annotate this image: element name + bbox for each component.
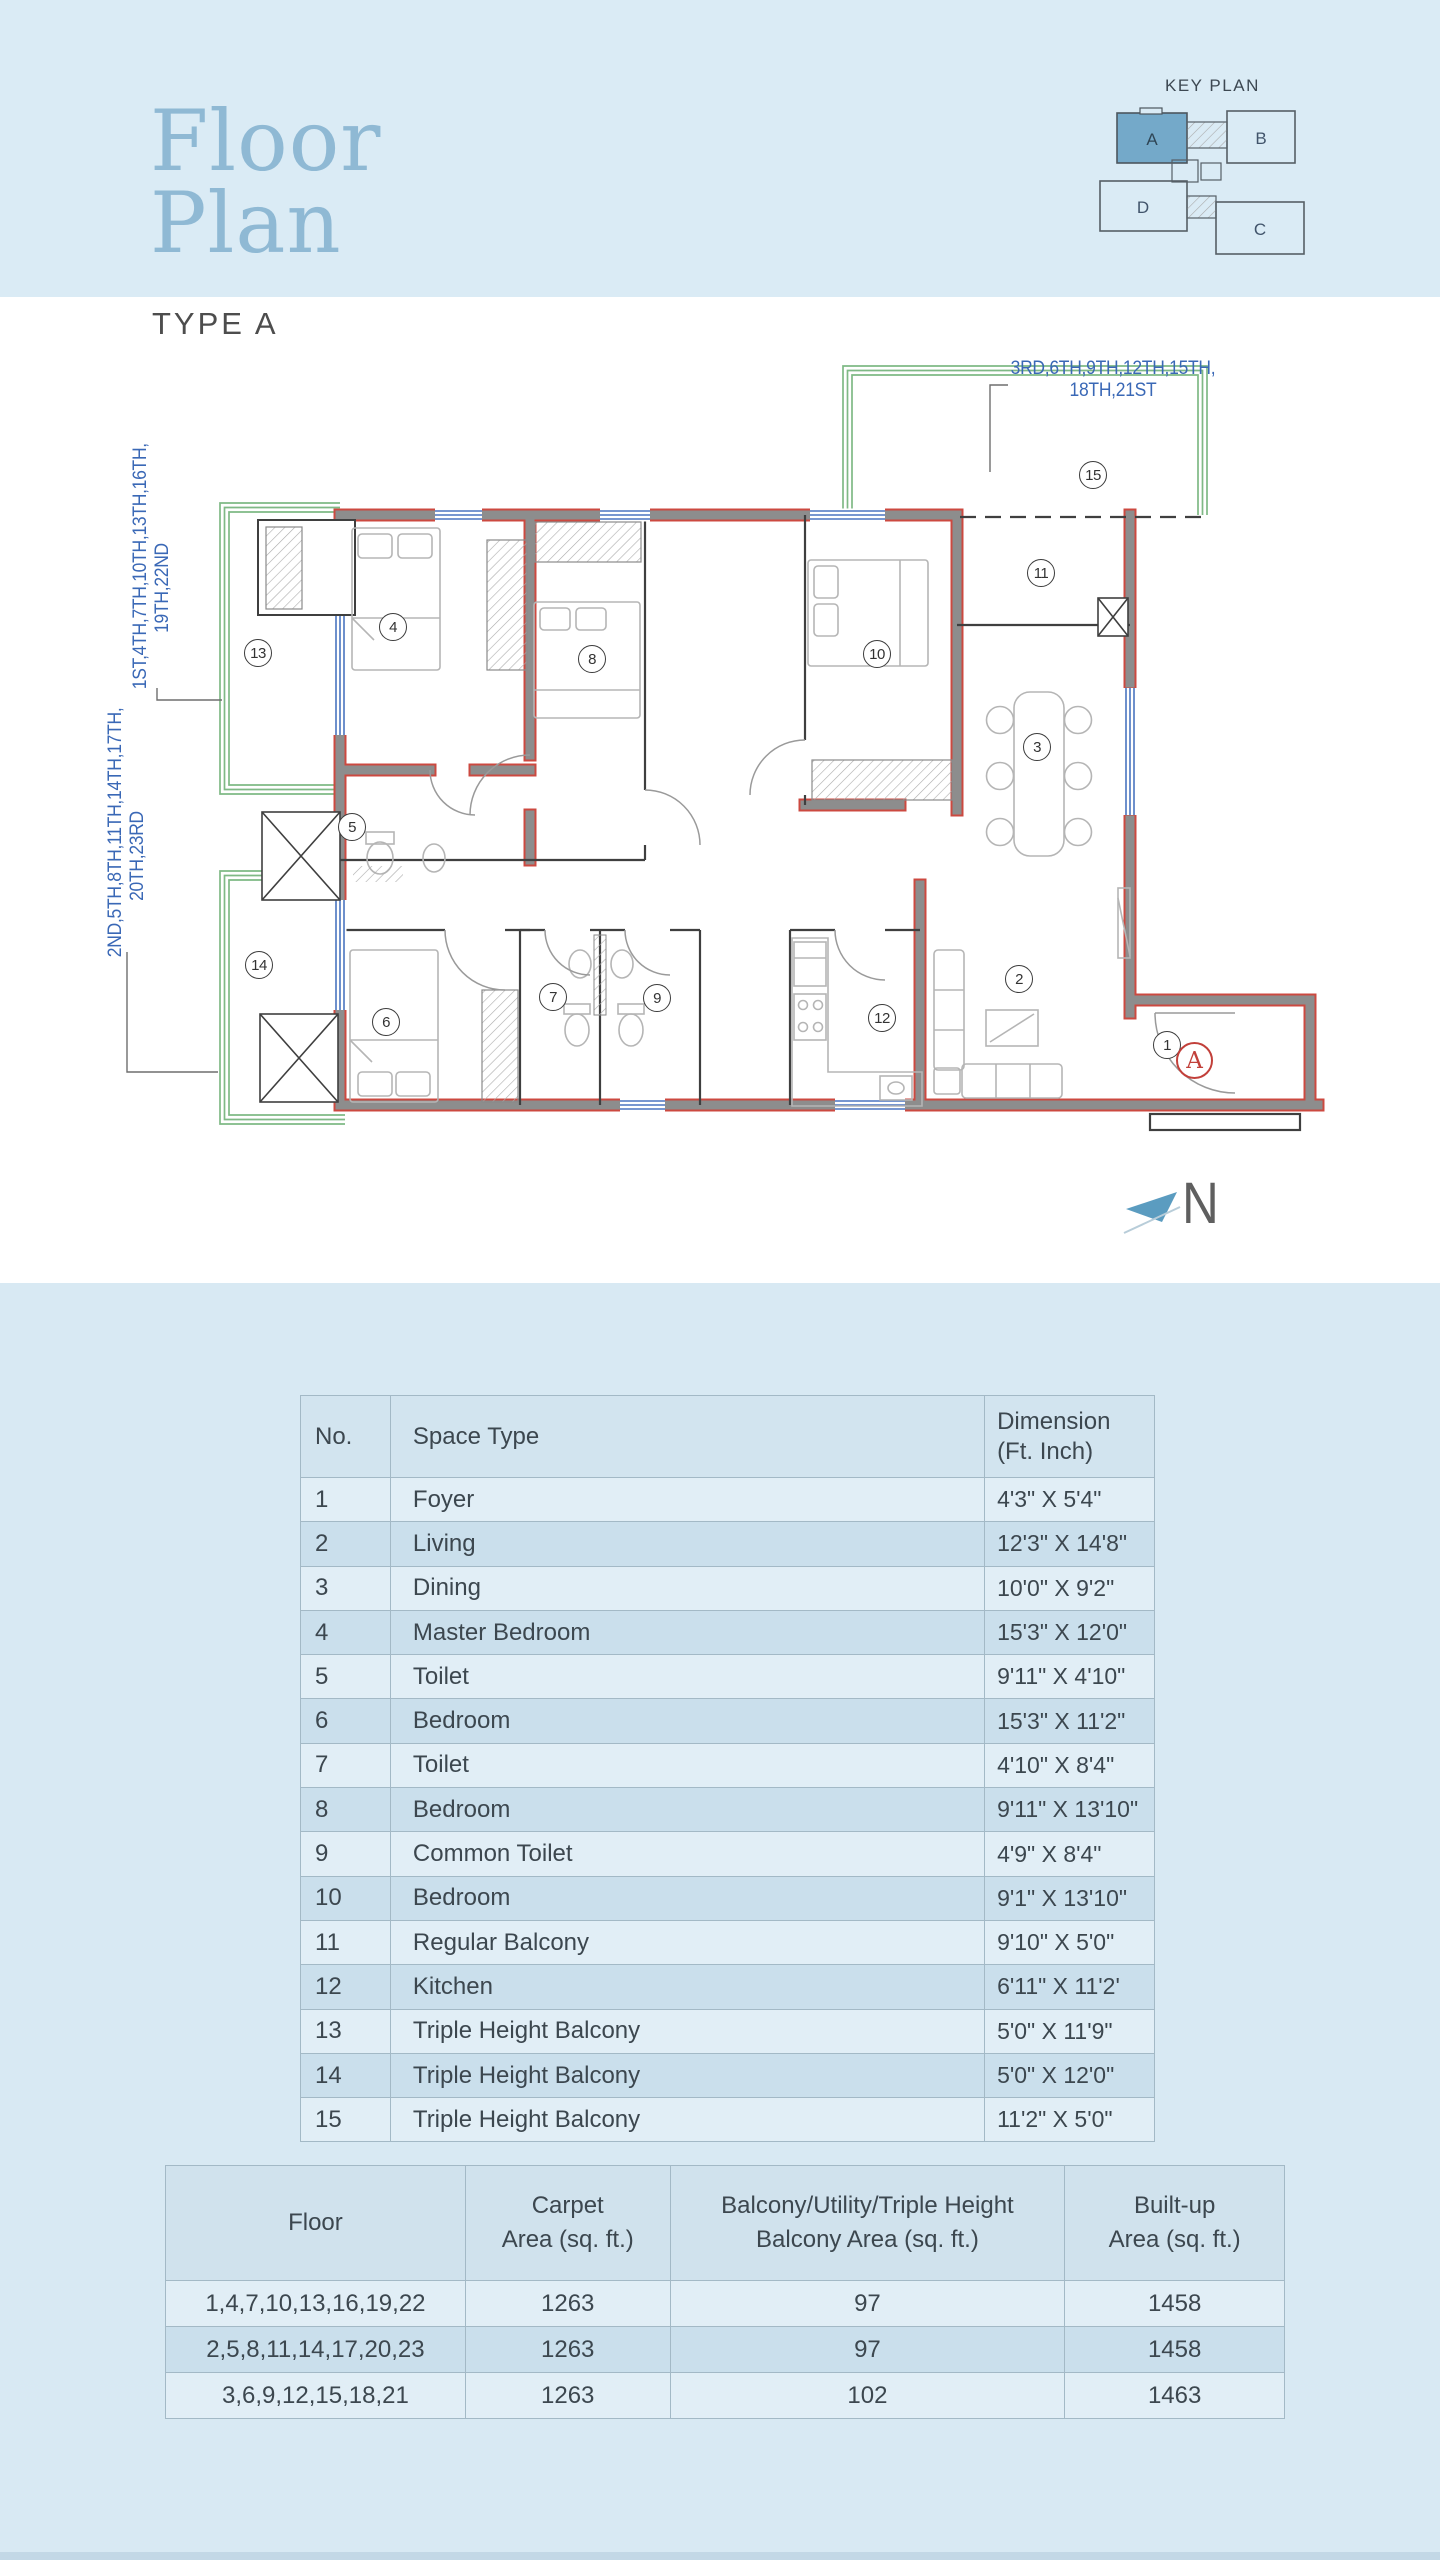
table-cell: 1458: [1065, 2281, 1285, 2327]
table-cell: 10: [301, 1876, 391, 1920]
unit-type-label: TYPE A: [152, 306, 279, 342]
table-cell: Toilet: [390, 1743, 984, 1787]
table-cell: 9'10" X 5'0": [985, 1920, 1155, 1964]
table-row: 8Bedroom9'11" X 13'10": [301, 1788, 1155, 1832]
table-cell: Foyer: [390, 1478, 984, 1522]
table-cell: 5'0" X 11'9": [985, 2009, 1155, 2053]
table-cell: 4'10" X 8'4": [985, 1743, 1155, 1787]
table-row: 1,4,7,10,13,16,19,221263971458: [166, 2281, 1285, 2327]
table-row: 11Regular Balcony9'10" X 5'0": [301, 1920, 1155, 1964]
room-marker-6: 6: [372, 1008, 400, 1036]
table-cell: 13: [301, 2009, 391, 2053]
table-cell: Toilet: [390, 1655, 984, 1699]
floor-range-label-left-lower: 2ND,5TH,8TH,11TH,14TH,17TH,20TH,23RD: [105, 755, 149, 957]
table-cell: 1263: [465, 2281, 670, 2327]
north-label: N: [1182, 1170, 1219, 1237]
table-cell: Regular Balcony: [390, 1920, 984, 1964]
table-cell: 6'11" X 11'2': [985, 1965, 1155, 2009]
floor-area-table: Floor CarpetArea (sq. ft.) Balcony/Utili…: [165, 2165, 1285, 2419]
room-marker-3: 3: [1023, 733, 1051, 761]
table-cell: 9'1" X 13'10": [985, 1876, 1155, 1920]
table-cell: 1263: [465, 2327, 670, 2373]
table-row: 7Toilet4'10" X 8'4": [301, 1743, 1155, 1787]
table-row: 9Common Toilet4'9" X 8'4": [301, 1832, 1155, 1876]
table-row: 14Triple Height Balcony5'0" X 12'0": [301, 2053, 1155, 2097]
room-marker-9: 9: [643, 984, 671, 1012]
table-cell: 11'2" X 5'0": [985, 2098, 1155, 2142]
table-cell: 1: [301, 1478, 391, 1522]
key-plan-title: KEY PLAN: [1165, 76, 1260, 96]
walls: [340, 515, 1318, 1105]
room-marker-12: 12: [868, 1004, 896, 1032]
table-cell: 7: [301, 1743, 391, 1787]
table-row: 15Triple Height Balcony11'2" X 5'0": [301, 2098, 1155, 2142]
room-marker-7: 7: [539, 983, 567, 1011]
room-marker-15: 15: [1079, 461, 1107, 489]
windows: [334, 509, 1137, 1112]
table-cell: 4: [301, 1610, 391, 1654]
table-cell: 9'11" X 4'10": [985, 1655, 1155, 1699]
table-cell: 1463: [1065, 2373, 1285, 2419]
table-cell: 102: [670, 2373, 1065, 2419]
room-marker-4: 4: [379, 613, 407, 641]
table-cell: Living: [390, 1522, 984, 1566]
room-marker-11: 11: [1027, 559, 1055, 587]
table-cell: 12'3" X 14'8": [985, 1522, 1155, 1566]
table-cell: 10'0" X 9'2": [985, 1566, 1155, 1610]
table-row: 3Dining10'0" X 9'2": [301, 1566, 1155, 1610]
table-cell: 15: [301, 2098, 391, 2142]
room-marker-8: 8: [578, 645, 606, 673]
col-header-space-type: Space Type: [390, 1396, 984, 1478]
table-cell: Dining: [390, 1566, 984, 1610]
table-row: 12Kitchen6'11" X 11'2': [301, 1965, 1155, 2009]
table-row: 13Triple Height Balcony5'0" X 11'9": [301, 2009, 1155, 2053]
table-cell: 15'3" X 12'0": [985, 1610, 1155, 1654]
col-header-builtup: Built-upArea (sq. ft.): [1065, 2166, 1285, 2281]
bottom-edge-strip: [0, 2552, 1440, 2560]
space-dimension-table: No. Space Type Dimension(Ft. Inch) 1Foye…: [300, 1395, 1155, 2142]
table-cell: Triple Height Balcony: [390, 2053, 984, 2097]
table-cell: 1458: [1065, 2327, 1285, 2373]
table-cell: Bedroom: [390, 1876, 984, 1920]
unit-a-marker: A: [1176, 1042, 1213, 1079]
table-cell: Common Toilet: [390, 1832, 984, 1876]
table-cell: 3: [301, 1566, 391, 1610]
table-cell: 2,5,8,11,14,17,20,23: [166, 2327, 466, 2373]
table-cell: Bedroom: [390, 1788, 984, 1832]
furniture: [350, 528, 1130, 1106]
table-cell: 6: [301, 1699, 391, 1743]
floor-plan-page: { "header": { "title_lines": ["Floor", "…: [0, 0, 1440, 2560]
table-cell: Triple Height Balcony: [390, 2009, 984, 2053]
page-title: FloorPlan: [150, 100, 381, 265]
table-cell: 4'9" X 8'4": [985, 1832, 1155, 1876]
table-cell: 9: [301, 1832, 391, 1876]
north-arrow-icon: [1124, 1192, 1180, 1233]
table-header-row: Floor CarpetArea (sq. ft.) Balcony/Utili…: [166, 2166, 1285, 2281]
table-cell: 1263: [465, 2373, 670, 2419]
table-row: 2,5,8,11,14,17,20,231263971458: [166, 2327, 1285, 2373]
room-marker-14: 14: [245, 951, 273, 979]
room-marker-5: 5: [338, 813, 366, 841]
room-marker-10: 10: [863, 640, 891, 668]
table-cell: Master Bedroom: [390, 1610, 984, 1654]
table-cell: 97: [670, 2281, 1065, 2327]
table-cell: 14: [301, 2053, 391, 2097]
table-cell: 11: [301, 1920, 391, 1964]
table-cell: 5: [301, 1655, 391, 1699]
floor-range-label-top: 3RD,6TH,9TH,12TH,15TH,18TH,21ST: [975, 358, 1251, 403]
col-header-floor: Floor: [166, 2166, 466, 2281]
balcony-outlines: [220, 366, 1207, 1124]
table-row: 5Toilet9'11" X 4'10": [301, 1655, 1155, 1699]
table-cell: Triple Height Balcony: [390, 2098, 984, 2142]
table-header-row: No. Space Type Dimension(Ft. Inch): [301, 1396, 1155, 1478]
col-header-carpet: CarpetArea (sq. ft.): [465, 2166, 670, 2281]
floor-range-label-left-upper: 1ST,4TH,7TH,10TH,13TH,16TH,19TH,22ND: [130, 487, 174, 689]
room-marker-13: 13: [244, 639, 272, 667]
table-cell: 1,4,7,10,13,16,19,22: [166, 2281, 466, 2327]
table-cell: 5'0" X 12'0": [985, 2053, 1155, 2097]
col-header-no: No.: [301, 1396, 391, 1478]
col-header-balcony: Balcony/Utility/Triple HeightBalcony Are…: [670, 2166, 1065, 2281]
table-cell: 2: [301, 1522, 391, 1566]
table-cell: 8: [301, 1788, 391, 1832]
table-row: 1Foyer4'3" X 5'4": [301, 1478, 1155, 1522]
table-cell: Kitchen: [390, 1965, 984, 2009]
wall-red-edges: [340, 515, 1318, 1105]
table-cell: 3,6,9,12,15,18,21: [166, 2373, 466, 2419]
table-cell: 12: [301, 1965, 391, 2009]
table-cell: 9'11" X 13'10": [985, 1788, 1155, 1832]
table-row: 4Master Bedroom15'3" X 12'0": [301, 1610, 1155, 1654]
table-cell: 97: [670, 2327, 1065, 2373]
table-row: 10Bedroom9'1" X 13'10": [301, 1876, 1155, 1920]
table-row: 2Living12'3" X 14'8": [301, 1522, 1155, 1566]
table-row: 6Bedroom15'3" X 11'2": [301, 1699, 1155, 1743]
table-cell: 4'3" X 5'4": [985, 1478, 1155, 1522]
room-marker-2: 2: [1005, 965, 1033, 993]
table-cell: 15'3" X 11'2": [985, 1699, 1155, 1743]
door-arcs: [430, 740, 1235, 1093]
table-row: 3,6,9,12,15,18,2112631021463: [166, 2373, 1285, 2419]
col-header-dimension: Dimension(Ft. Inch): [985, 1396, 1155, 1478]
table-cell: Bedroom: [390, 1699, 984, 1743]
